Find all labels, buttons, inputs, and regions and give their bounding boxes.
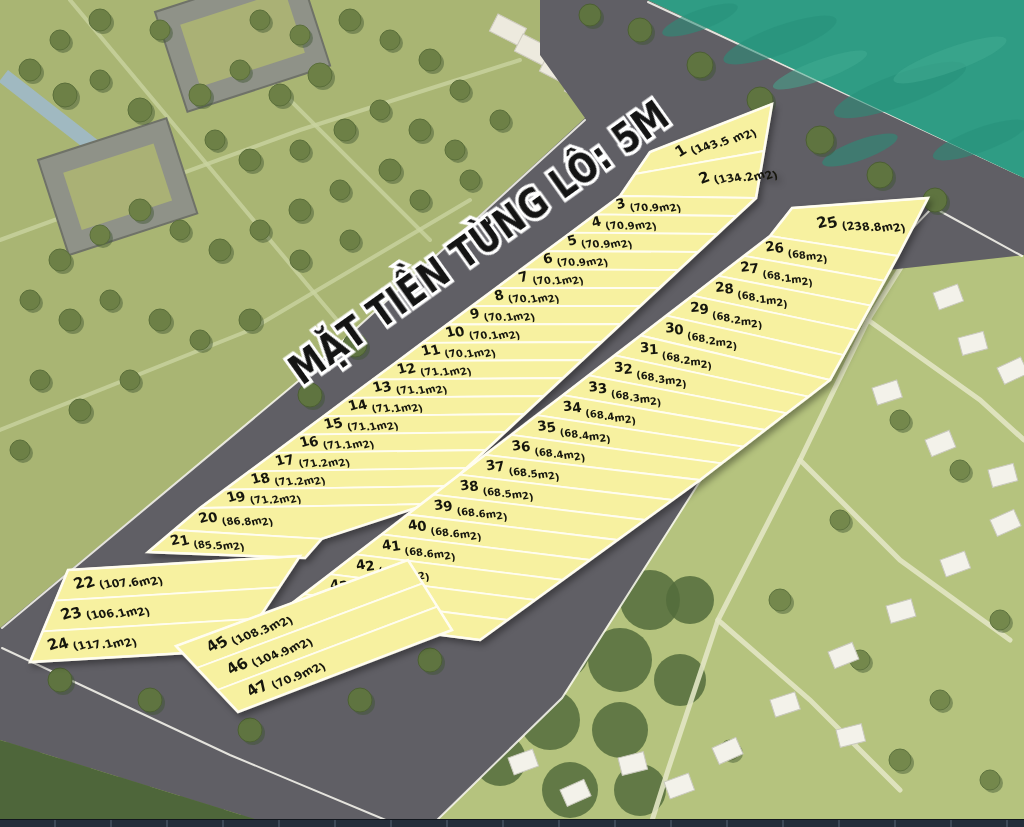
video-progress-bar[interactable] (0, 819, 1024, 827)
masterplan-svg: 1(143.5 m2)2(134.2m2)3(70.9m2)4(70.9m2)5… (0, 0, 1024, 827)
map-canvas: 1(143.5 m2)2(134.2m2)3(70.9m2)4(70.9m2)5… (0, 0, 1024, 827)
